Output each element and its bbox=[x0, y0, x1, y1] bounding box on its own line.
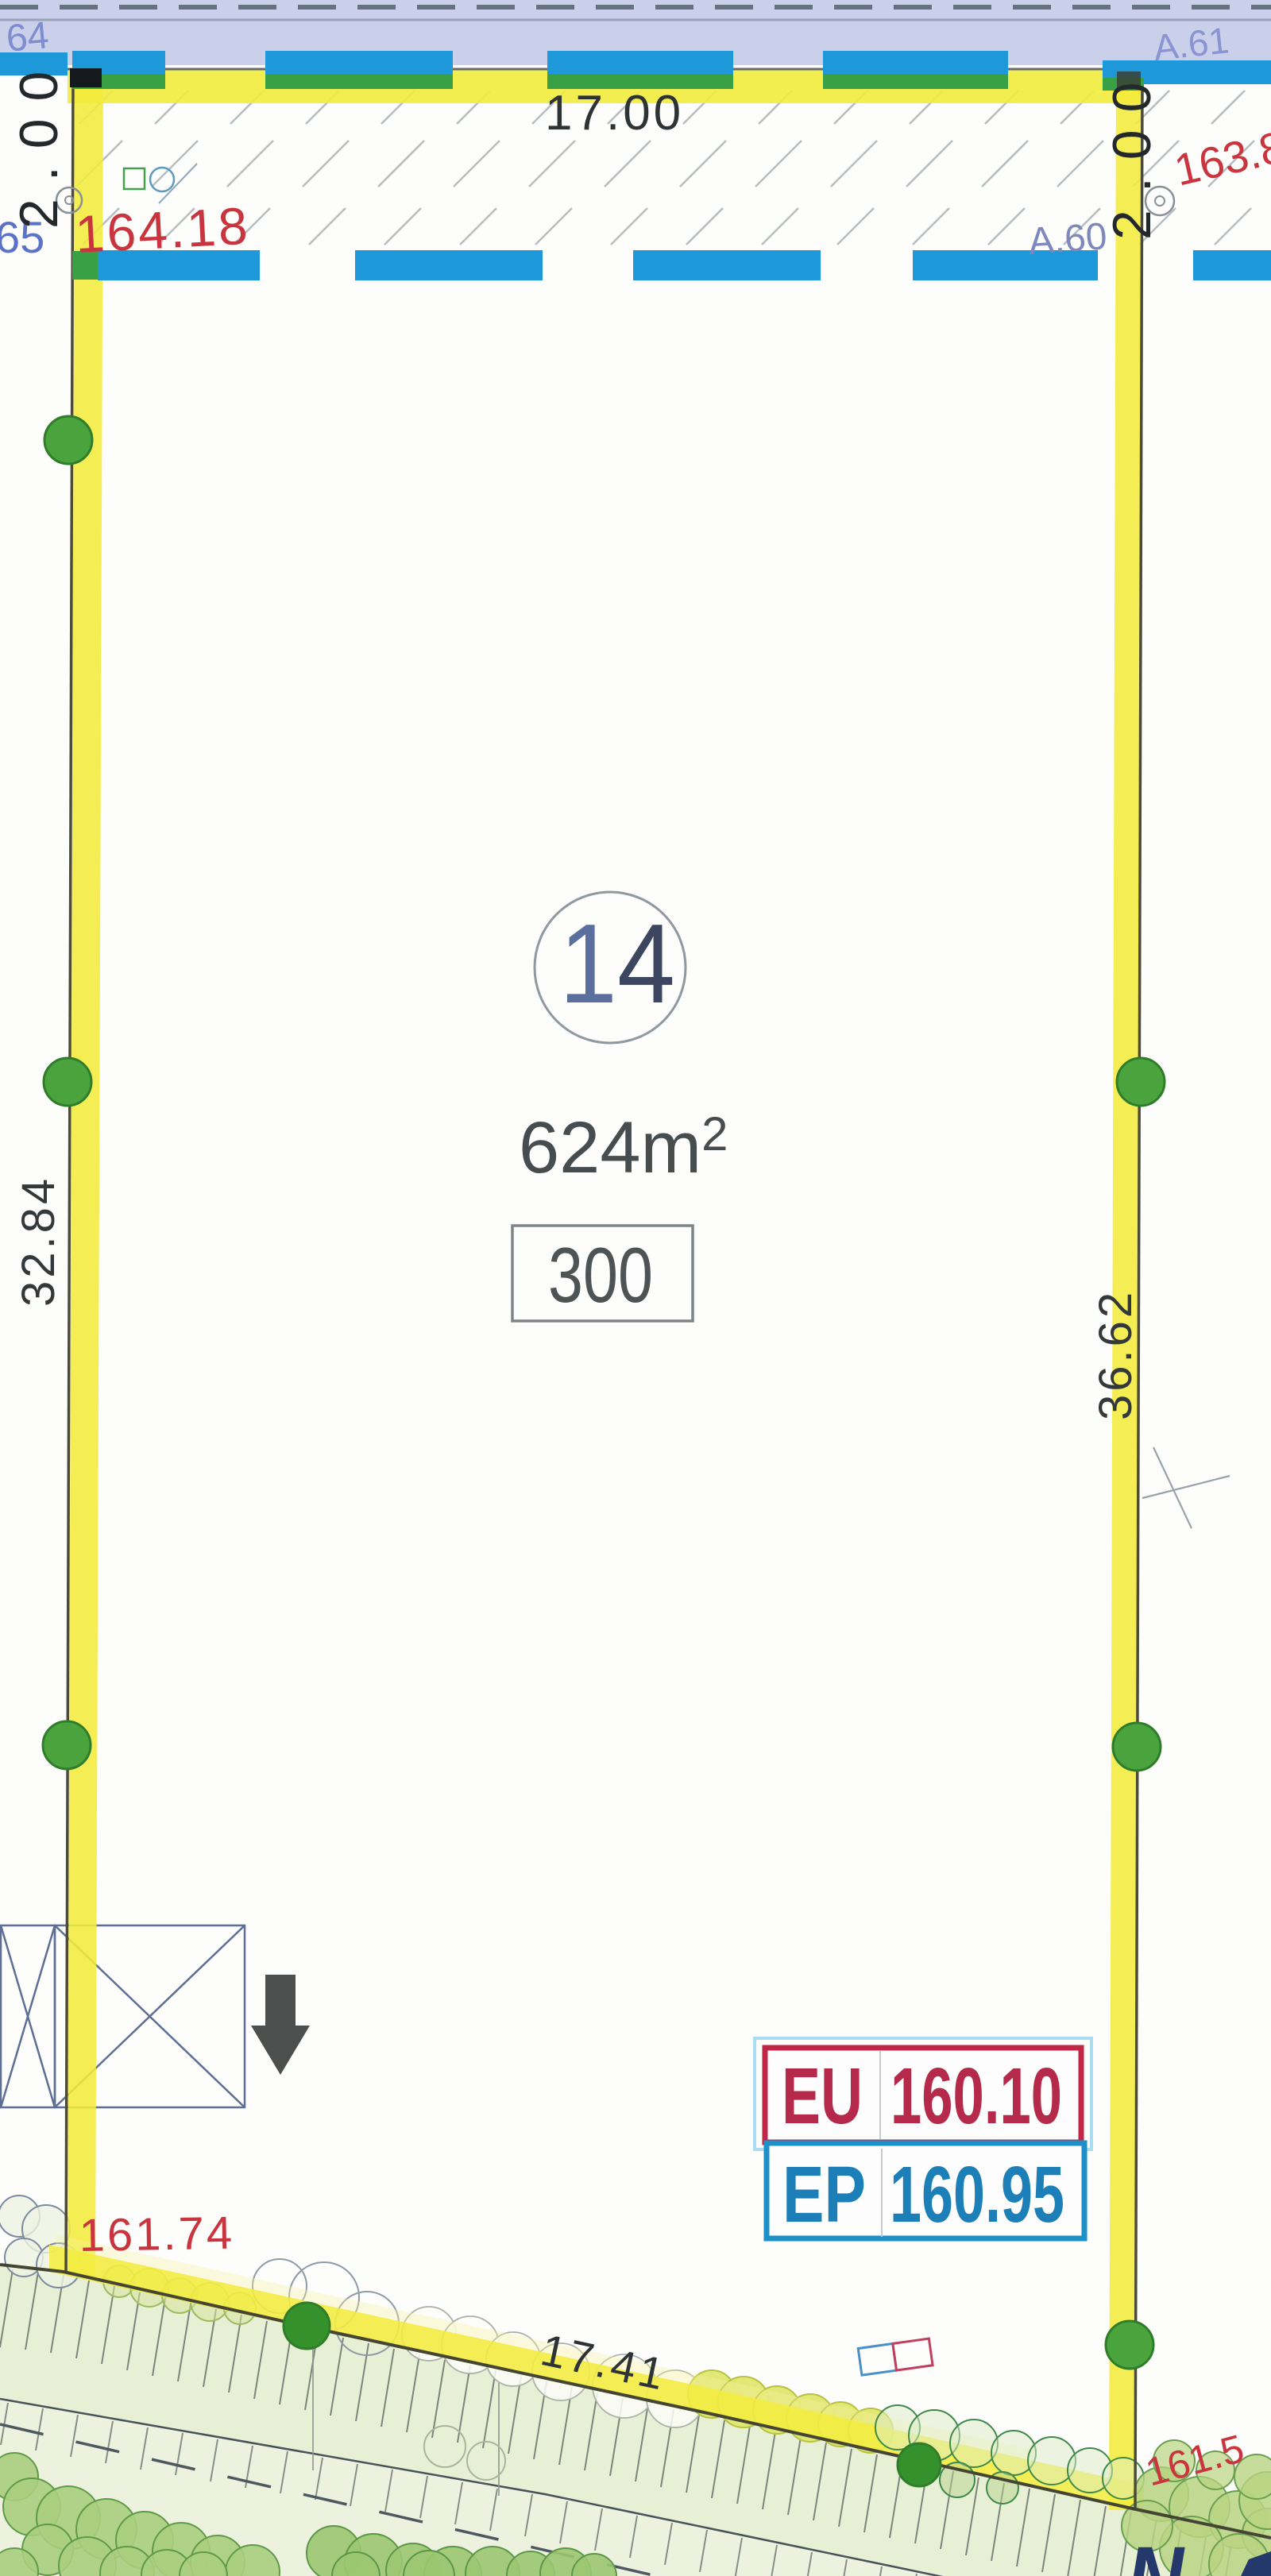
svg-text:N: N bbox=[1126, 2528, 1186, 2576]
svg-text:160.95: 160.95 bbox=[890, 2150, 1064, 2239]
svg-text:17.00: 17.00 bbox=[545, 86, 684, 141]
svg-text:161.74: 161.74 bbox=[79, 2207, 235, 2261]
svg-text:EP: EP bbox=[782, 2150, 866, 2239]
svg-text:EU: EU bbox=[782, 2052, 863, 2141]
svg-text:300: 300 bbox=[548, 1231, 653, 1319]
svg-text:A.60: A.60 bbox=[1027, 215, 1108, 263]
svg-text:2.00: 2.00 bbox=[9, 54, 69, 229]
svg-text:2.00: 2.00 bbox=[1102, 65, 1162, 240]
svg-text:160.10: 160.10 bbox=[890, 2052, 1062, 2141]
svg-text:624m2: 624m2 bbox=[519, 1107, 728, 1188]
svg-text:164.18: 164.18 bbox=[74, 196, 251, 264]
svg-text:64: 64 bbox=[5, 14, 51, 60]
svg-text:36.62: 36.62 bbox=[1090, 1289, 1142, 1420]
svg-text:A.61: A.61 bbox=[1152, 19, 1231, 68]
svg-text:32.84: 32.84 bbox=[13, 1176, 64, 1307]
svg-text:14: 14 bbox=[559, 901, 675, 1027]
